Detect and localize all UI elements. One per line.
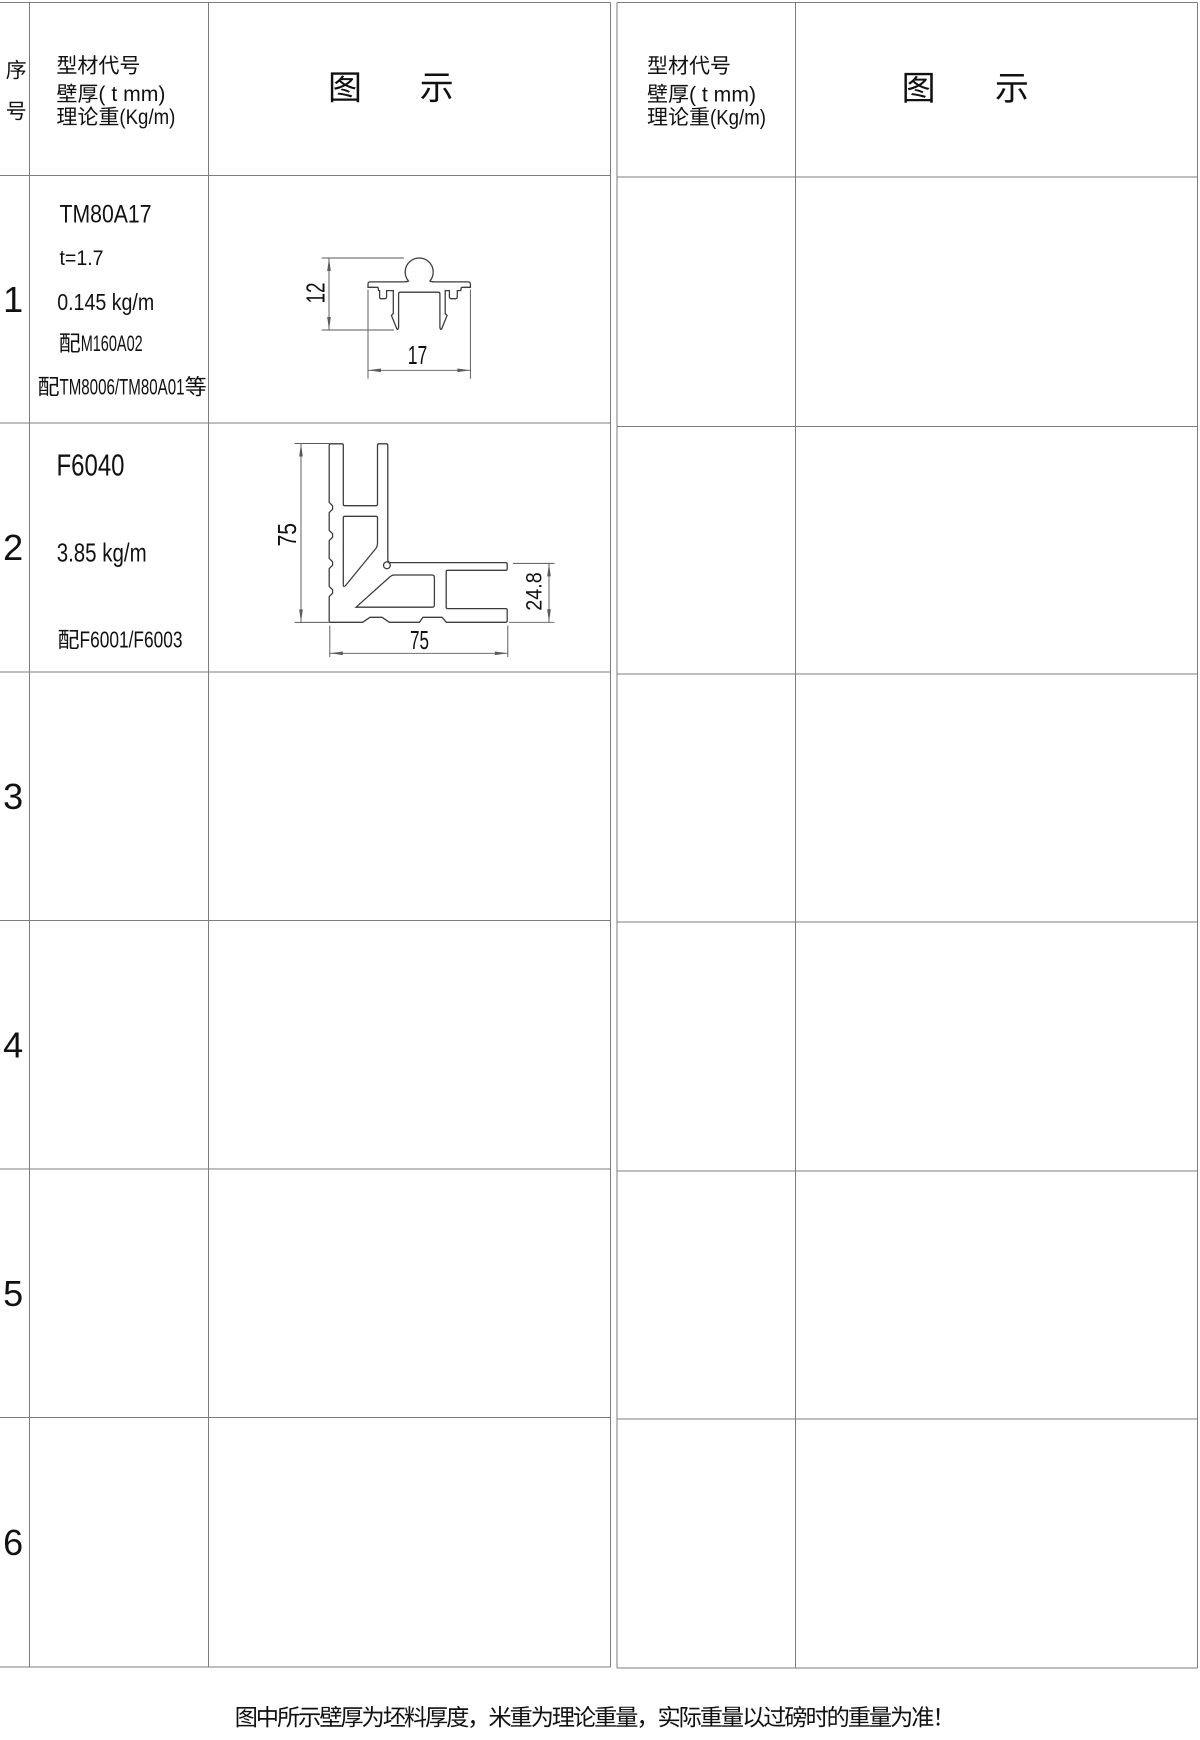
svg-text:(Kg/m): (Kg/m) bbox=[710, 106, 766, 129]
svg-text:2: 2 bbox=[3, 527, 23, 568]
svg-text:75: 75 bbox=[410, 625, 429, 655]
svg-text:4: 4 bbox=[3, 1024, 23, 1065]
svg-text:F6001/F6003: F6001/F6003 bbox=[80, 627, 183, 653]
svg-text:24.8: 24.8 bbox=[522, 572, 547, 611]
svg-text:(Kg/m): (Kg/m) bbox=[119, 106, 175, 129]
svg-text:0.145 kg/m: 0.145 kg/m bbox=[57, 289, 154, 315]
svg-text:17: 17 bbox=[408, 340, 428, 370]
svg-text:75: 75 bbox=[272, 523, 302, 547]
svg-text:TM8006/TM80A01: TM8006/TM80A01 bbox=[60, 375, 185, 400]
svg-text:12: 12 bbox=[301, 283, 331, 304]
svg-text:( t mm): ( t mm) bbox=[98, 83, 165, 106]
svg-text:M160A02: M160A02 bbox=[81, 331, 143, 356]
svg-text:( t mm): ( t mm) bbox=[689, 83, 756, 106]
svg-text:3.85 kg/m: 3.85 kg/m bbox=[57, 538, 147, 568]
svg-text:TM80A17: TM80A17 bbox=[60, 201, 152, 229]
svg-text:6: 6 bbox=[3, 1522, 23, 1563]
svg-text:3: 3 bbox=[3, 776, 23, 817]
svg-text:F6040: F6040 bbox=[57, 448, 125, 483]
svg-text:1: 1 bbox=[3, 279, 23, 320]
svg-text:5: 5 bbox=[3, 1273, 23, 1314]
svg-text:t=1.7: t=1.7 bbox=[60, 246, 104, 270]
